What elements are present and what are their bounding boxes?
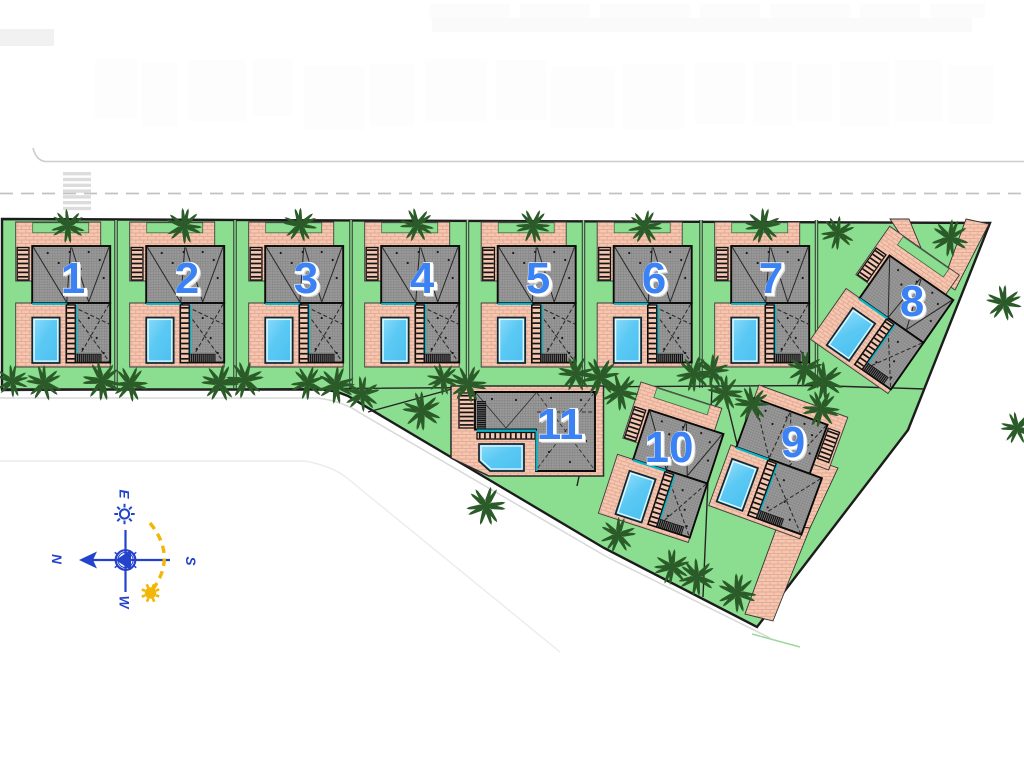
svg-text:1: 1 xyxy=(61,254,85,303)
svg-text:9: 9 xyxy=(781,418,805,467)
svg-text:6: 6 xyxy=(642,254,666,303)
svg-text:8: 8 xyxy=(900,277,924,326)
svg-text:7: 7 xyxy=(759,254,783,303)
svg-text:3: 3 xyxy=(294,254,318,303)
svg-text:W: W xyxy=(117,596,132,610)
svg-text:10: 10 xyxy=(645,423,694,472)
svg-text:2: 2 xyxy=(175,254,199,303)
svg-text:S: S xyxy=(183,556,198,565)
svg-text:E: E xyxy=(117,489,132,499)
svg-text:5: 5 xyxy=(526,254,550,303)
svg-text:11: 11 xyxy=(537,400,584,449)
svg-text:N: N xyxy=(49,554,64,564)
svg-text:4: 4 xyxy=(410,254,435,303)
